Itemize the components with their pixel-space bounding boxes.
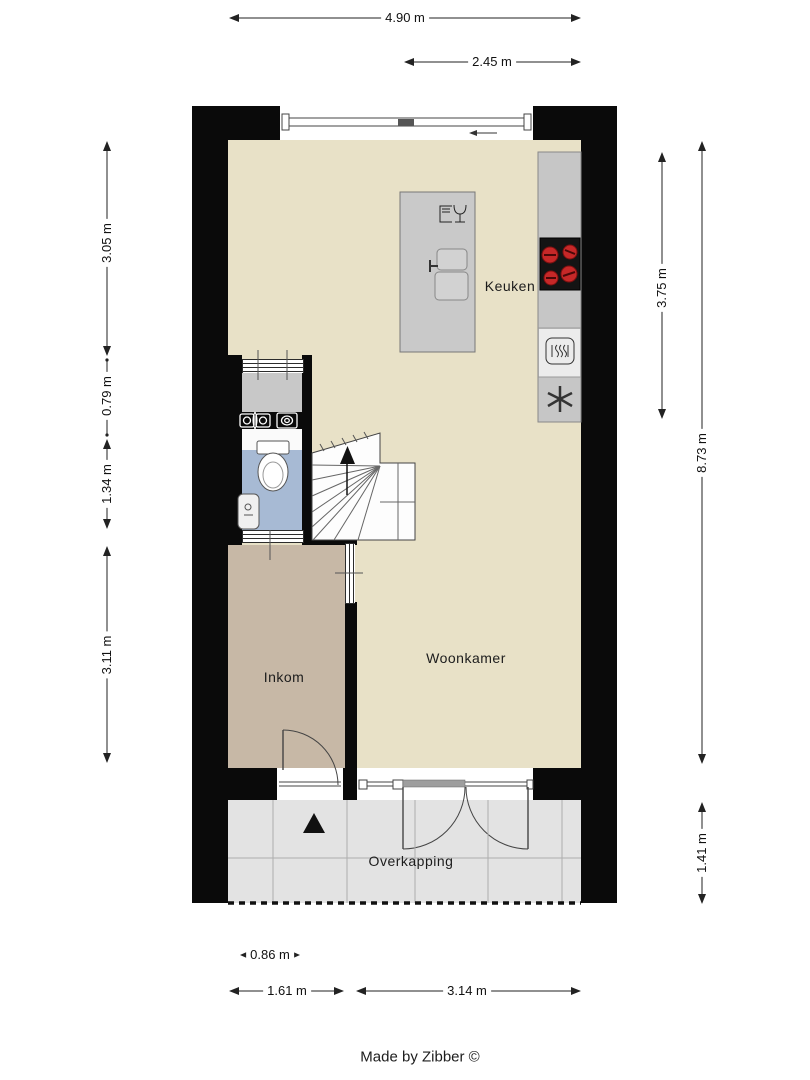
sliding-window-opening bbox=[280, 106, 533, 140]
dim-label-bottom-toilet: 0.86 m bbox=[246, 948, 294, 962]
dim-label-right-canopy: 1.41 m bbox=[695, 829, 709, 877]
wall-entrance-living bbox=[345, 602, 357, 800]
dim-label-left-toilet: 1.34 m bbox=[100, 460, 114, 508]
floor-entrance-hall bbox=[228, 545, 345, 768]
floorplan-canvas: 4.90 m 2.45 m 3.05 m 0.79 m 1.34 m 3.11 … bbox=[0, 0, 810, 1080]
room-label-canopy: Overkapping bbox=[369, 853, 454, 869]
floor-technical-closet bbox=[242, 373, 302, 412]
entrance-glass-panel bbox=[345, 543, 355, 604]
dim-label-right-counter: 3.75 m bbox=[655, 264, 669, 312]
floor-canopy bbox=[228, 800, 581, 903]
wall-bottom-right bbox=[533, 768, 617, 800]
credit-text: Made by Zibber © bbox=[360, 1049, 479, 1066]
dim-label-left-closet: 0.79 m bbox=[100, 372, 114, 420]
toilet-bottom-glass-strip bbox=[242, 530, 304, 543]
wall-bottom-left bbox=[192, 768, 277, 800]
dim-label-bottom-entrance: 1.61 m bbox=[263, 984, 311, 998]
dim-label-right-depth: 8.73 m bbox=[695, 429, 709, 477]
front-door-opening bbox=[277, 768, 343, 800]
dim-label-top-window: 2.45 m bbox=[468, 55, 516, 69]
wall-bathroom-left bbox=[228, 355, 242, 545]
dim-label-left-entrance: 3.11 m bbox=[100, 632, 114, 679]
floor-toilet-room bbox=[242, 450, 302, 530]
dim-label-left-kitchen: 3.05 m bbox=[100, 219, 114, 267]
garden-doors-opening bbox=[357, 768, 533, 800]
room-label-entrance: Inkom bbox=[264, 669, 305, 685]
dim-label-bottom-living: 3.14 m bbox=[443, 984, 491, 998]
toilet-shelf bbox=[242, 429, 302, 450]
room-label-kitchen: Keuken bbox=[485, 278, 535, 294]
bathroom-top-glass-strip bbox=[242, 359, 304, 373]
technical-appliance-strip bbox=[242, 412, 302, 429]
dim-label-top-width: 4.90 m bbox=[381, 11, 429, 25]
room-label-living: Woonkamer bbox=[426, 650, 506, 666]
wall-bathroom-right bbox=[302, 355, 312, 545]
